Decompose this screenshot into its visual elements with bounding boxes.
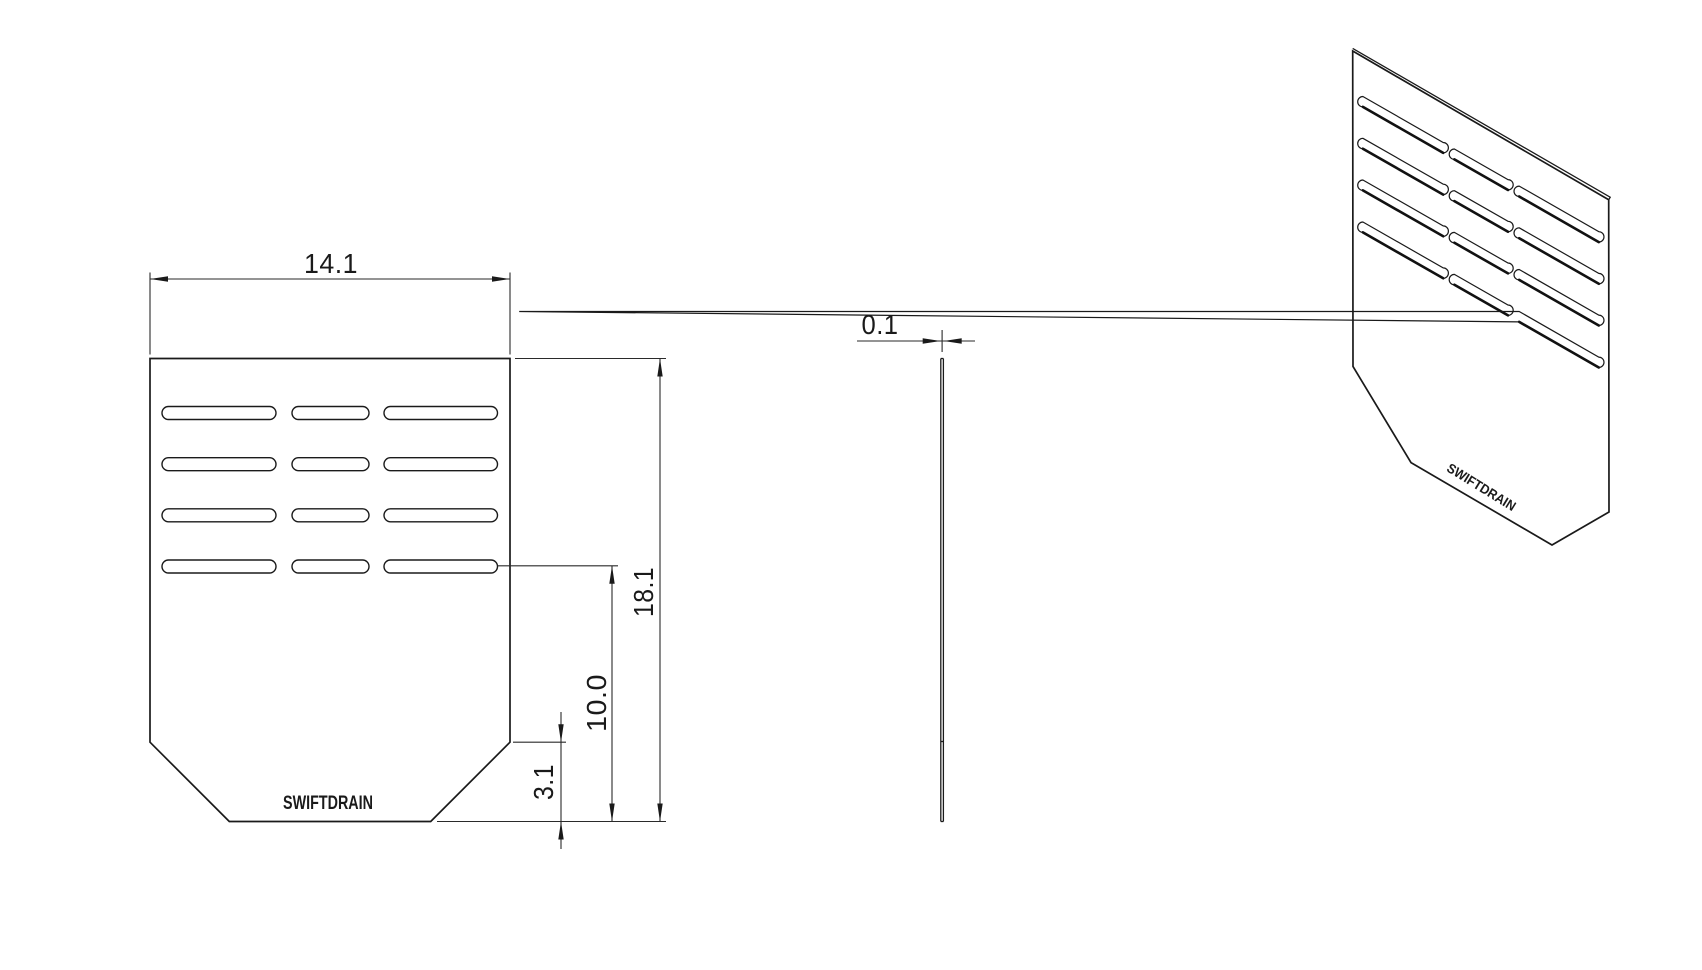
- slot: [384, 509, 498, 522]
- slot: [1449, 149, 1513, 190]
- slot: [162, 458, 276, 471]
- arrowhead-up: [558, 822, 563, 840]
- slot: [519, 312, 1604, 368]
- front-slot-grid: [162, 407, 498, 574]
- dimension-width-value: 14.1: [304, 248, 358, 279]
- arrowhead-down: [558, 724, 563, 742]
- front-view: SWIFTDRAIN 14.1 18.1 10.0: [150, 248, 666, 849]
- front-plate-outline: [150, 359, 510, 822]
- dimension-height-value: 18.1: [628, 567, 659, 617]
- slot: [162, 407, 276, 420]
- dimension-chamfer-value: 3.1: [528, 764, 559, 800]
- slot-lower-edge: [1363, 232, 1443, 278]
- slot: [292, 458, 369, 471]
- slot-lower-edge: [1519, 322, 1599, 368]
- iso-plate-outline: [1353, 51, 1609, 545]
- front-brand-label: SWIFTDRAIN: [283, 793, 373, 814]
- arrowhead-up: [657, 359, 662, 377]
- slot: [384, 458, 498, 471]
- iso-brand-label: SWIFTDRAIN: [1444, 460, 1518, 514]
- arrowhead-down: [657, 804, 662, 822]
- slot: [162, 509, 276, 522]
- slot: [1449, 232, 1513, 273]
- arrowhead-left: [944, 338, 962, 343]
- dimension-slot-offset-value: 10.0: [581, 674, 612, 732]
- dimension-width: 14.1: [150, 248, 510, 355]
- slot: [292, 509, 369, 522]
- slot: [384, 407, 498, 420]
- dimension-chamfer: 3.1: [513, 712, 566, 849]
- iso-slot-grid: [519, 97, 1604, 368]
- cad-drawing-canvas: SWIFTDRAIN 14.1 18.1 10.0: [0, 0, 1702, 970]
- slot: [1449, 274, 1513, 315]
- side-view: 0.1: [857, 309, 975, 822]
- drawing-sheet: SWIFTDRAIN 14.1 18.1 10.0: [0, 0, 1702, 970]
- arrowhead-down: [609, 804, 614, 822]
- slot: [384, 560, 498, 573]
- slot: [1514, 186, 1604, 242]
- slot: [1449, 191, 1513, 232]
- arrowhead-up: [609, 566, 614, 584]
- arrowhead-right: [923, 338, 941, 343]
- slot: [292, 560, 369, 573]
- arrowhead-left: [150, 276, 168, 281]
- slot-lower-edge: [1363, 149, 1443, 195]
- isometric-view: SWIFTDRAIN: [519, 48, 1610, 545]
- slot: [1358, 97, 1449, 153]
- slot-lower-edge: [1363, 107, 1443, 153]
- dimension-thickness-value: 0.1: [862, 309, 899, 340]
- dimension-height: 18.1: [437, 359, 666, 822]
- slot: [162, 560, 276, 573]
- slot: [292, 407, 369, 420]
- arrowhead-right: [492, 276, 510, 281]
